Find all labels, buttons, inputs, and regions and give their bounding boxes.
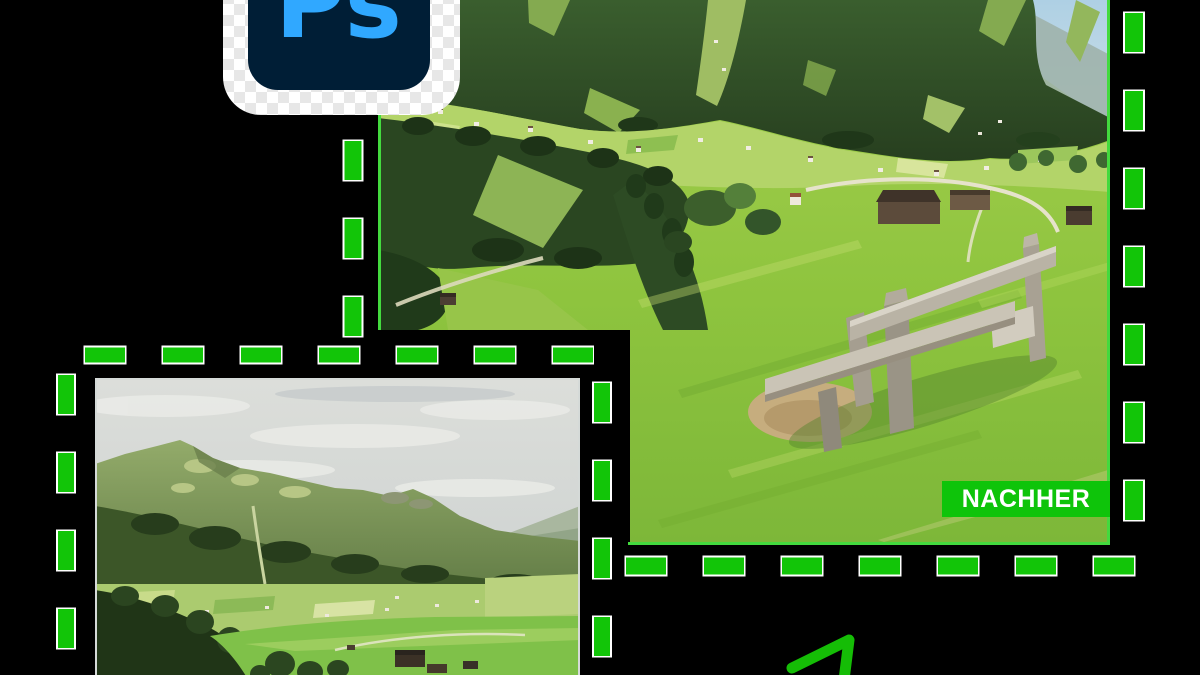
photoshop-icon: Ps [248,0,430,90]
after-badge: NACHHER [942,481,1110,517]
before-photo [95,378,580,675]
promo-canvas: NACHHER Ps [0,0,1200,675]
after-badge-label: NACHHER [962,485,1091,514]
photoshop-icon-text: Ps [248,0,430,52]
arrow-icon [778,628,878,675]
photoshop-icon-card: Ps [223,0,460,115]
